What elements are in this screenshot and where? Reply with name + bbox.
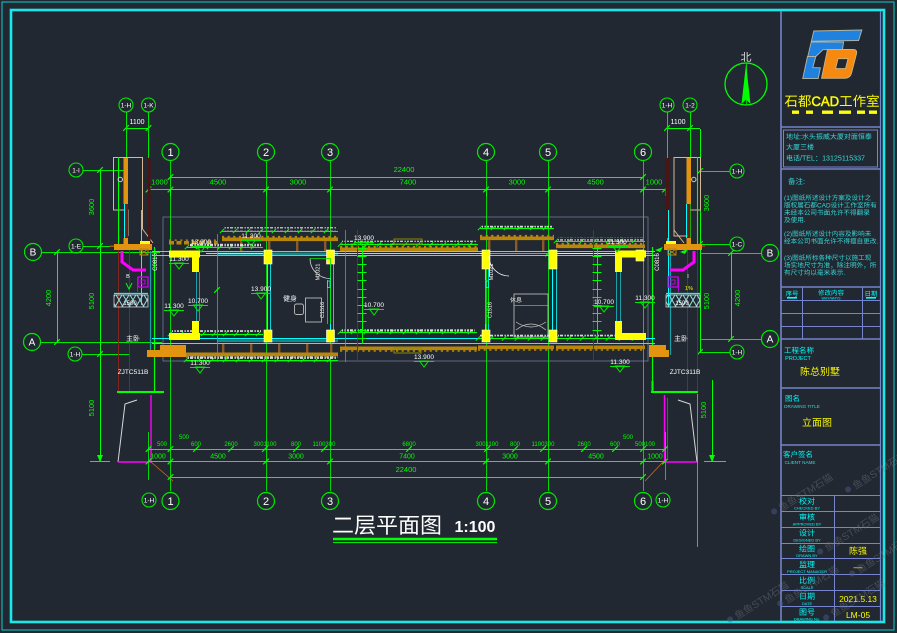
svg-text:5100: 5100	[702, 293, 711, 310]
svg-text:1-H: 1-H	[121, 102, 132, 109]
svg-text:4200: 4200	[44, 290, 53, 307]
svg-text:11.300: 11.300	[610, 359, 630, 366]
svg-text:3: 3	[327, 496, 333, 508]
svg-text:10.700: 10.700	[594, 299, 614, 306]
svg-text:1500: 1500	[675, 301, 689, 307]
svg-text:7400: 7400	[399, 454, 415, 461]
svg-text:6: 6	[640, 496, 646, 508]
svg-text:1-H: 1-H	[732, 349, 743, 356]
svg-text:22400: 22400	[396, 465, 417, 474]
svg-text:CHECKED BY: CHECKED BY	[794, 506, 820, 511]
svg-text:1100: 1100	[670, 119, 685, 126]
svg-text:1-E: 1-E	[71, 243, 82, 250]
svg-text:PROJECT MANAGER: PROJECT MANAGER	[787, 569, 827, 574]
svg-text:1000: 1000	[150, 454, 166, 461]
svg-text:DATE: DATE	[802, 601, 813, 606]
svg-text:CAD: CAD	[811, 94, 839, 109]
svg-text:，: ，	[863, 262, 870, 269]
svg-text:500: 500	[157, 442, 168, 448]
svg-text:C1516: C1516	[320, 302, 326, 318]
svg-text:1:100: 1:100	[455, 519, 496, 536]
svg-text:10.700: 10.700	[188, 298, 208, 305]
svg-text:1: 1	[167, 147, 173, 159]
svg-text:1500: 1500	[123, 301, 137, 307]
svg-text:1000: 1000	[647, 454, 663, 461]
svg-text:1100: 1100	[129, 119, 144, 126]
svg-text:11.300: 11.300	[164, 303, 184, 310]
svg-text:B: B	[126, 274, 130, 280]
svg-text:1-K: 1-K	[143, 102, 154, 109]
svg-text:5100: 5100	[87, 293, 96, 310]
svg-text:7400: 7400	[400, 178, 417, 187]
svg-text:1-H: 1-H	[658, 497, 669, 504]
svg-text:WHY/WHYS: WHY/WHYS	[821, 297, 841, 301]
svg-text:DESIGNED BY: DESIGNED BY	[793, 537, 821, 542]
svg-text:1-I: 1-I	[72, 167, 80, 174]
svg-text:PROJECT: PROJECT	[785, 356, 811, 362]
svg-text:2600: 2600	[224, 442, 238, 448]
svg-text:C1516: C1516	[488, 302, 494, 318]
svg-text:11.300: 11.300	[607, 239, 627, 246]
svg-text:4: 4	[483, 496, 489, 508]
svg-text:3001100: 3001100	[476, 442, 500, 448]
svg-text:1-2: 1-2	[685, 102, 695, 109]
svg-text:5100: 5100	[87, 400, 96, 417]
svg-text:1000: 1000	[151, 178, 168, 187]
svg-text:DRAWING TITLE: DRAWING TITLE	[784, 404, 820, 409]
svg-text:500100: 500100	[635, 442, 656, 448]
svg-text:2: 2	[263, 496, 269, 508]
svg-text:11.300: 11.300	[169, 256, 189, 263]
svg-text:.: .	[876, 238, 878, 245]
svg-text:CAD: CAD	[817, 202, 831, 209]
svg-text:.: .	[804, 217, 806, 224]
svg-text:，: ，	[830, 262, 837, 269]
svg-text:13.900: 13.900	[354, 235, 374, 242]
svg-text:11.300: 11.300	[190, 360, 210, 367]
svg-text:M1021: M1021	[489, 264, 495, 281]
svg-text:1-H: 1-H	[144, 497, 155, 504]
svg-text:4200: 4200	[733, 290, 742, 307]
svg-text::: :	[800, 134, 802, 141]
svg-text:1: 1	[167, 496, 173, 508]
svg-text:3000: 3000	[290, 178, 307, 187]
svg-text:3000: 3000	[509, 178, 526, 187]
svg-text:600: 600	[610, 442, 621, 448]
svg-text:CLIENT NAME: CLIENT NAME	[785, 460, 816, 465]
svg-text:500: 500	[623, 435, 634, 441]
svg-text:1000: 1000	[646, 178, 663, 187]
svg-text:800: 800	[291, 442, 302, 448]
svg-text:13.900: 13.900	[251, 286, 271, 293]
svg-text:(2): (2)	[784, 231, 792, 238]
svg-text:3000: 3000	[502, 454, 518, 461]
svg-text:M1021: M1021	[316, 264, 322, 281]
svg-text:1100300: 1100300	[532, 442, 556, 448]
svg-text:3001100: 3001100	[254, 442, 278, 448]
svg-text:/TEL：13125115337: /TEL：13125115337	[800, 156, 865, 163]
svg-text:11.300: 11.300	[635, 295, 655, 302]
svg-text:(3): (3)	[784, 255, 792, 262]
svg-text:600: 600	[191, 442, 202, 448]
svg-text:6800: 6800	[402, 442, 416, 448]
svg-text:22400: 22400	[394, 165, 415, 174]
svg-text:13.900: 13.900	[191, 239, 211, 246]
svg-text:1-H: 1-H	[662, 102, 673, 109]
svg-text:DRAWN BY: DRAWN BY	[796, 553, 818, 558]
svg-text:1%: 1%	[685, 286, 693, 292]
svg-text:5: 5	[545, 147, 551, 159]
svg-text:A: A	[29, 338, 36, 349]
svg-text:4500: 4500	[588, 454, 604, 461]
svg-text:.: .	[843, 270, 845, 277]
svg-text:11.300: 11.300	[241, 233, 261, 240]
svg-text:4500: 4500	[210, 178, 227, 187]
svg-text:4: 4	[483, 147, 489, 159]
svg-text::: :	[803, 177, 805, 186]
svg-text:B: B	[30, 248, 37, 259]
svg-text:1-H: 1-H	[732, 168, 743, 175]
svg-text:3000: 3000	[288, 454, 304, 461]
svg-text:1-C: 1-C	[732, 241, 743, 248]
svg-text:B: B	[767, 249, 774, 260]
svg-text:500: 500	[179, 435, 190, 441]
svg-text:ZJTC311B: ZJTC311B	[670, 369, 701, 376]
svg-text:(1): (1)	[784, 195, 792, 202]
svg-text:DRAWING No.: DRAWING No.	[794, 617, 821, 622]
svg-text:4500: 4500	[210, 454, 226, 461]
svg-text:2: 2	[263, 147, 269, 159]
svg-text:1-H: 1-H	[70, 351, 81, 358]
svg-text:ZJTC511B: ZJTC511B	[118, 369, 149, 376]
svg-text:LM-05: LM-05	[846, 610, 870, 620]
svg-text:6: 6	[640, 147, 646, 159]
svg-text:5: 5	[545, 496, 551, 508]
svg-text:13.900: 13.900	[414, 354, 434, 361]
svg-text:5100: 5100	[699, 402, 708, 419]
svg-text:2600: 2600	[577, 442, 591, 448]
svg-text:C0816: C0816	[655, 253, 661, 271]
svg-text:800: 800	[510, 442, 521, 448]
svg-text:APPROVED BY: APPROVED BY	[793, 522, 822, 527]
svg-text:10.700: 10.700	[364, 302, 384, 309]
svg-text:1100300: 1100300	[313, 442, 337, 448]
svg-text:3600: 3600	[702, 195, 711, 212]
svg-text:3600: 3600	[87, 199, 96, 216]
svg-text:3: 3	[327, 147, 333, 159]
svg-text:A: A	[767, 335, 774, 346]
svg-text:4500: 4500	[587, 178, 604, 187]
